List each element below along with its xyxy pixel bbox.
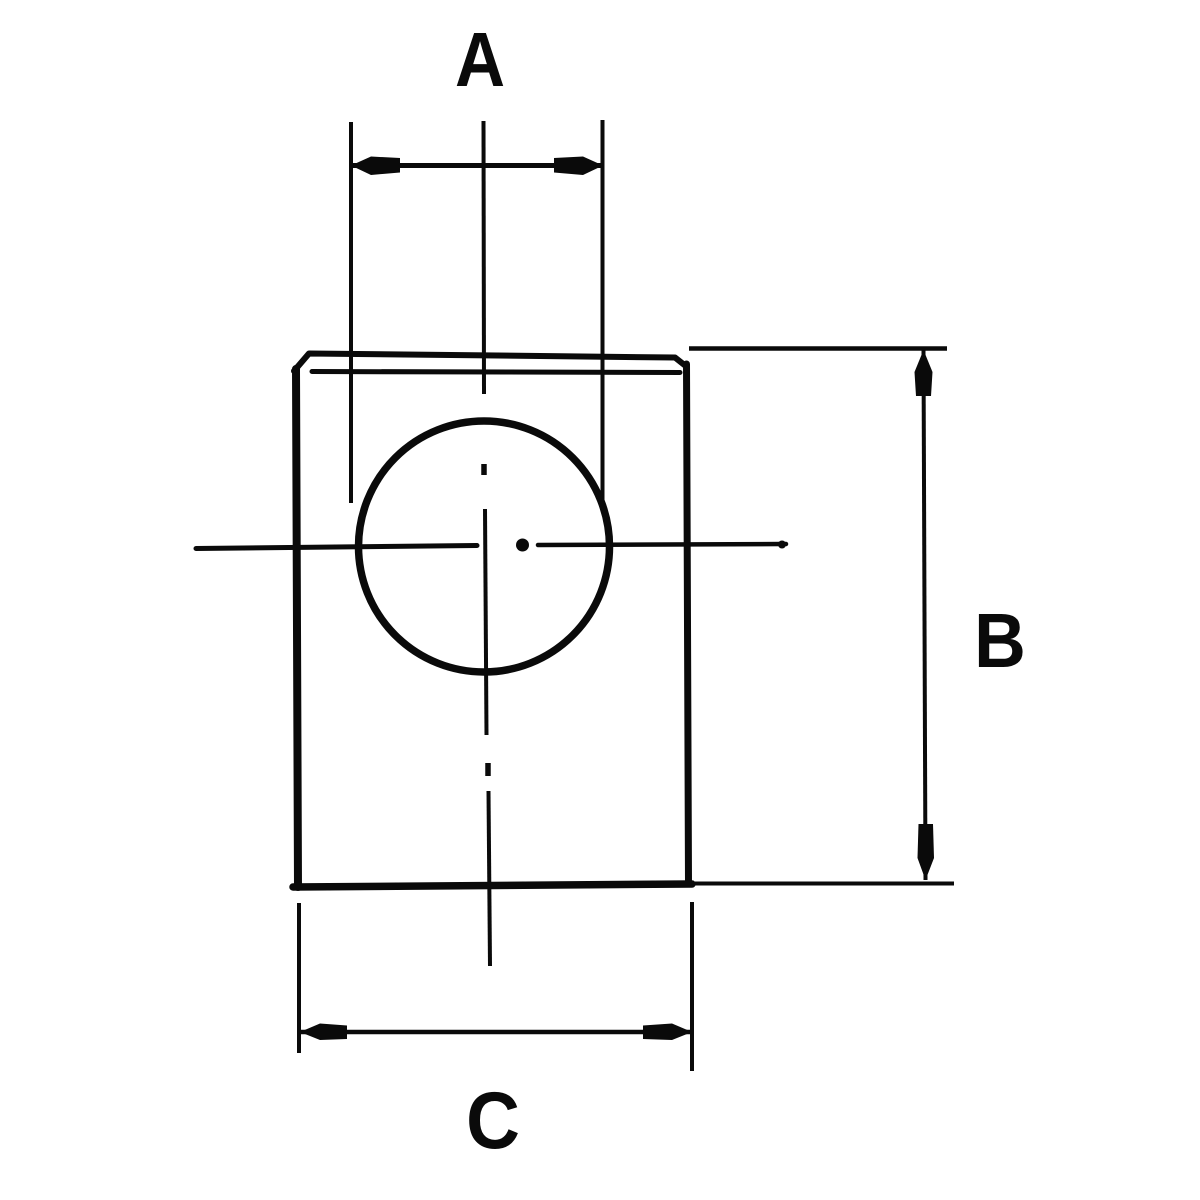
svg-text:B: B: [974, 598, 1026, 684]
svg-text:C: C: [466, 1076, 520, 1166]
svg-text:A: A: [455, 17, 505, 103]
